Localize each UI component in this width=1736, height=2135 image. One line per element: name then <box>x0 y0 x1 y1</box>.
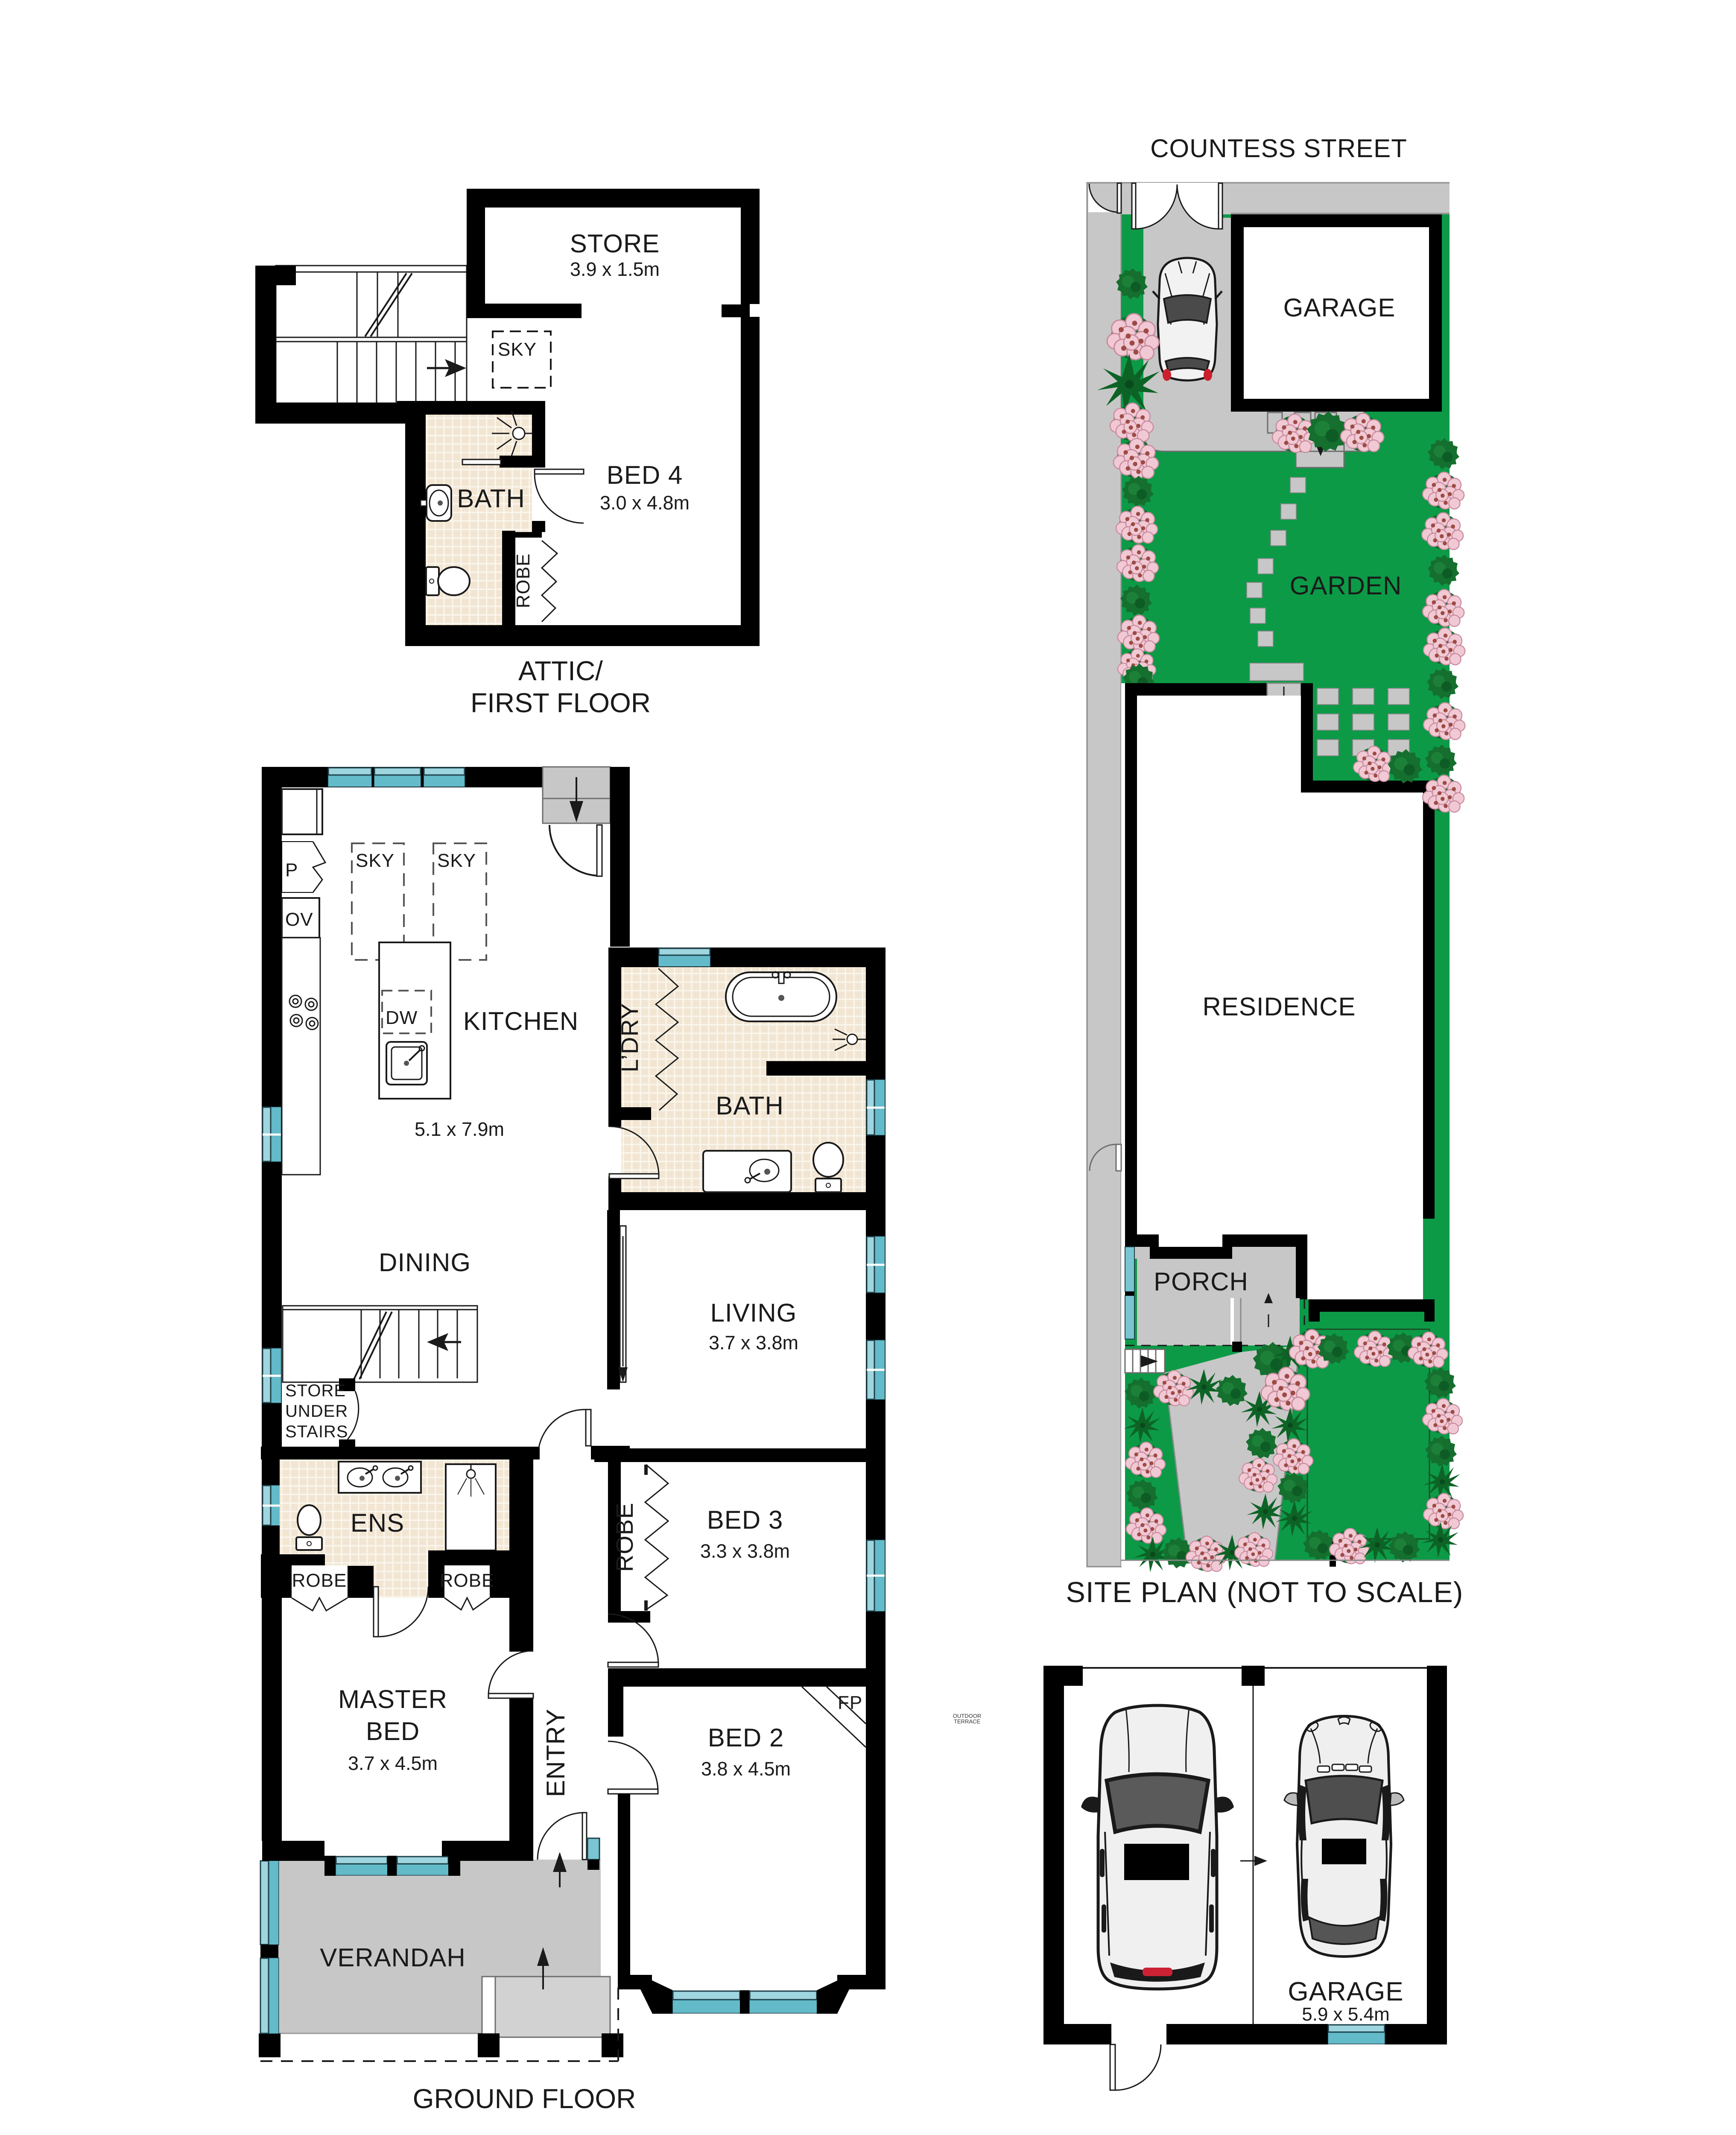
svg-text:5.9 x 5.4m: 5.9 x 5.4m <box>1302 2004 1389 2025</box>
svg-text:3.3 x 3.8m: 3.3 x 3.8m <box>700 1540 790 1562</box>
svg-text:ROBE: ROBE <box>440 1570 495 1591</box>
svg-text:SKY: SKY <box>437 850 476 871</box>
svg-text:BATH: BATH <box>457 484 525 513</box>
svg-text:LIVING: LIVING <box>710 1299 797 1327</box>
svg-text:MASTER: MASTER <box>338 1685 447 1714</box>
svg-text:GROUND FLOOR: GROUND FLOOR <box>413 2083 636 2114</box>
svg-text:COUNTESS STREET: COUNTESS STREET <box>1150 134 1407 163</box>
svg-text:FP: FP <box>838 1692 862 1713</box>
svg-text:GARAGE: GARAGE <box>1283 293 1396 322</box>
svg-text:3.8 x 4.5m: 3.8 x 4.5m <box>701 1758 791 1780</box>
svg-text:UNDER: UNDER <box>285 1402 348 1421</box>
svg-text:ROBE: ROBE <box>292 1570 347 1591</box>
svg-text:BED: BED <box>366 1717 420 1746</box>
svg-text:SKY: SKY <box>498 339 537 360</box>
svg-text:BED 4: BED 4 <box>607 461 683 489</box>
svg-text:3.7 x 3.8m: 3.7 x 3.8m <box>709 1332 798 1354</box>
svg-text:BATH: BATH <box>716 1091 784 1120</box>
svg-text:STORE: STORE <box>285 1381 346 1400</box>
svg-text:GARDEN: GARDEN <box>1290 571 1402 600</box>
svg-text:ROBE: ROBE <box>611 1503 638 1572</box>
svg-text:3.0 x 4.8m: 3.0 x 4.8m <box>600 492 690 514</box>
svg-text:5.1 x 7.9m: 5.1 x 7.9m <box>415 1118 504 1140</box>
svg-text:ROBE: ROBE <box>513 553 534 608</box>
svg-text:OV: OV <box>285 909 313 930</box>
svg-text:TERRACE: TERRACE <box>954 1718 980 1725</box>
svg-text:PORCH: PORCH <box>1154 1267 1248 1296</box>
svg-text:ENS: ENS <box>351 1509 404 1537</box>
svg-text:STORE: STORE <box>570 229 660 258</box>
svg-text:ENTRY: ENTRY <box>541 1708 570 1797</box>
svg-text:RESIDENCE: RESIDENCE <box>1202 992 1356 1021</box>
svg-text:KITCHEN: KITCHEN <box>463 1007 579 1035</box>
svg-text:3.9 x 1.5m: 3.9 x 1.5m <box>570 258 660 280</box>
svg-text:ATTIC/: ATTIC/ <box>518 655 603 686</box>
svg-text:GARAGE: GARAGE <box>1288 1977 1403 2006</box>
svg-text:BED 3: BED 3 <box>707 1506 783 1534</box>
svg-text:VERANDAH: VERANDAH <box>320 1943 465 1972</box>
svg-text:DW: DW <box>386 1007 418 1028</box>
svg-text:L’DRY: L’DRY <box>616 1003 643 1073</box>
svg-text:P: P <box>285 860 298 880</box>
svg-text:BED 2: BED 2 <box>708 1723 784 1752</box>
svg-text:SITE PLAN (NOT TO SCALE): SITE PLAN (NOT TO SCALE) <box>1066 1576 1464 1609</box>
svg-text:SKY: SKY <box>356 850 395 871</box>
svg-text:DINING: DINING <box>379 1248 471 1277</box>
svg-text:FIRST FLOOR: FIRST FLOOR <box>471 687 651 718</box>
svg-text:STAIRS: STAIRS <box>285 1422 348 1441</box>
svg-text:3.7 x 4.5m: 3.7 x 4.5m <box>348 1752 438 1774</box>
